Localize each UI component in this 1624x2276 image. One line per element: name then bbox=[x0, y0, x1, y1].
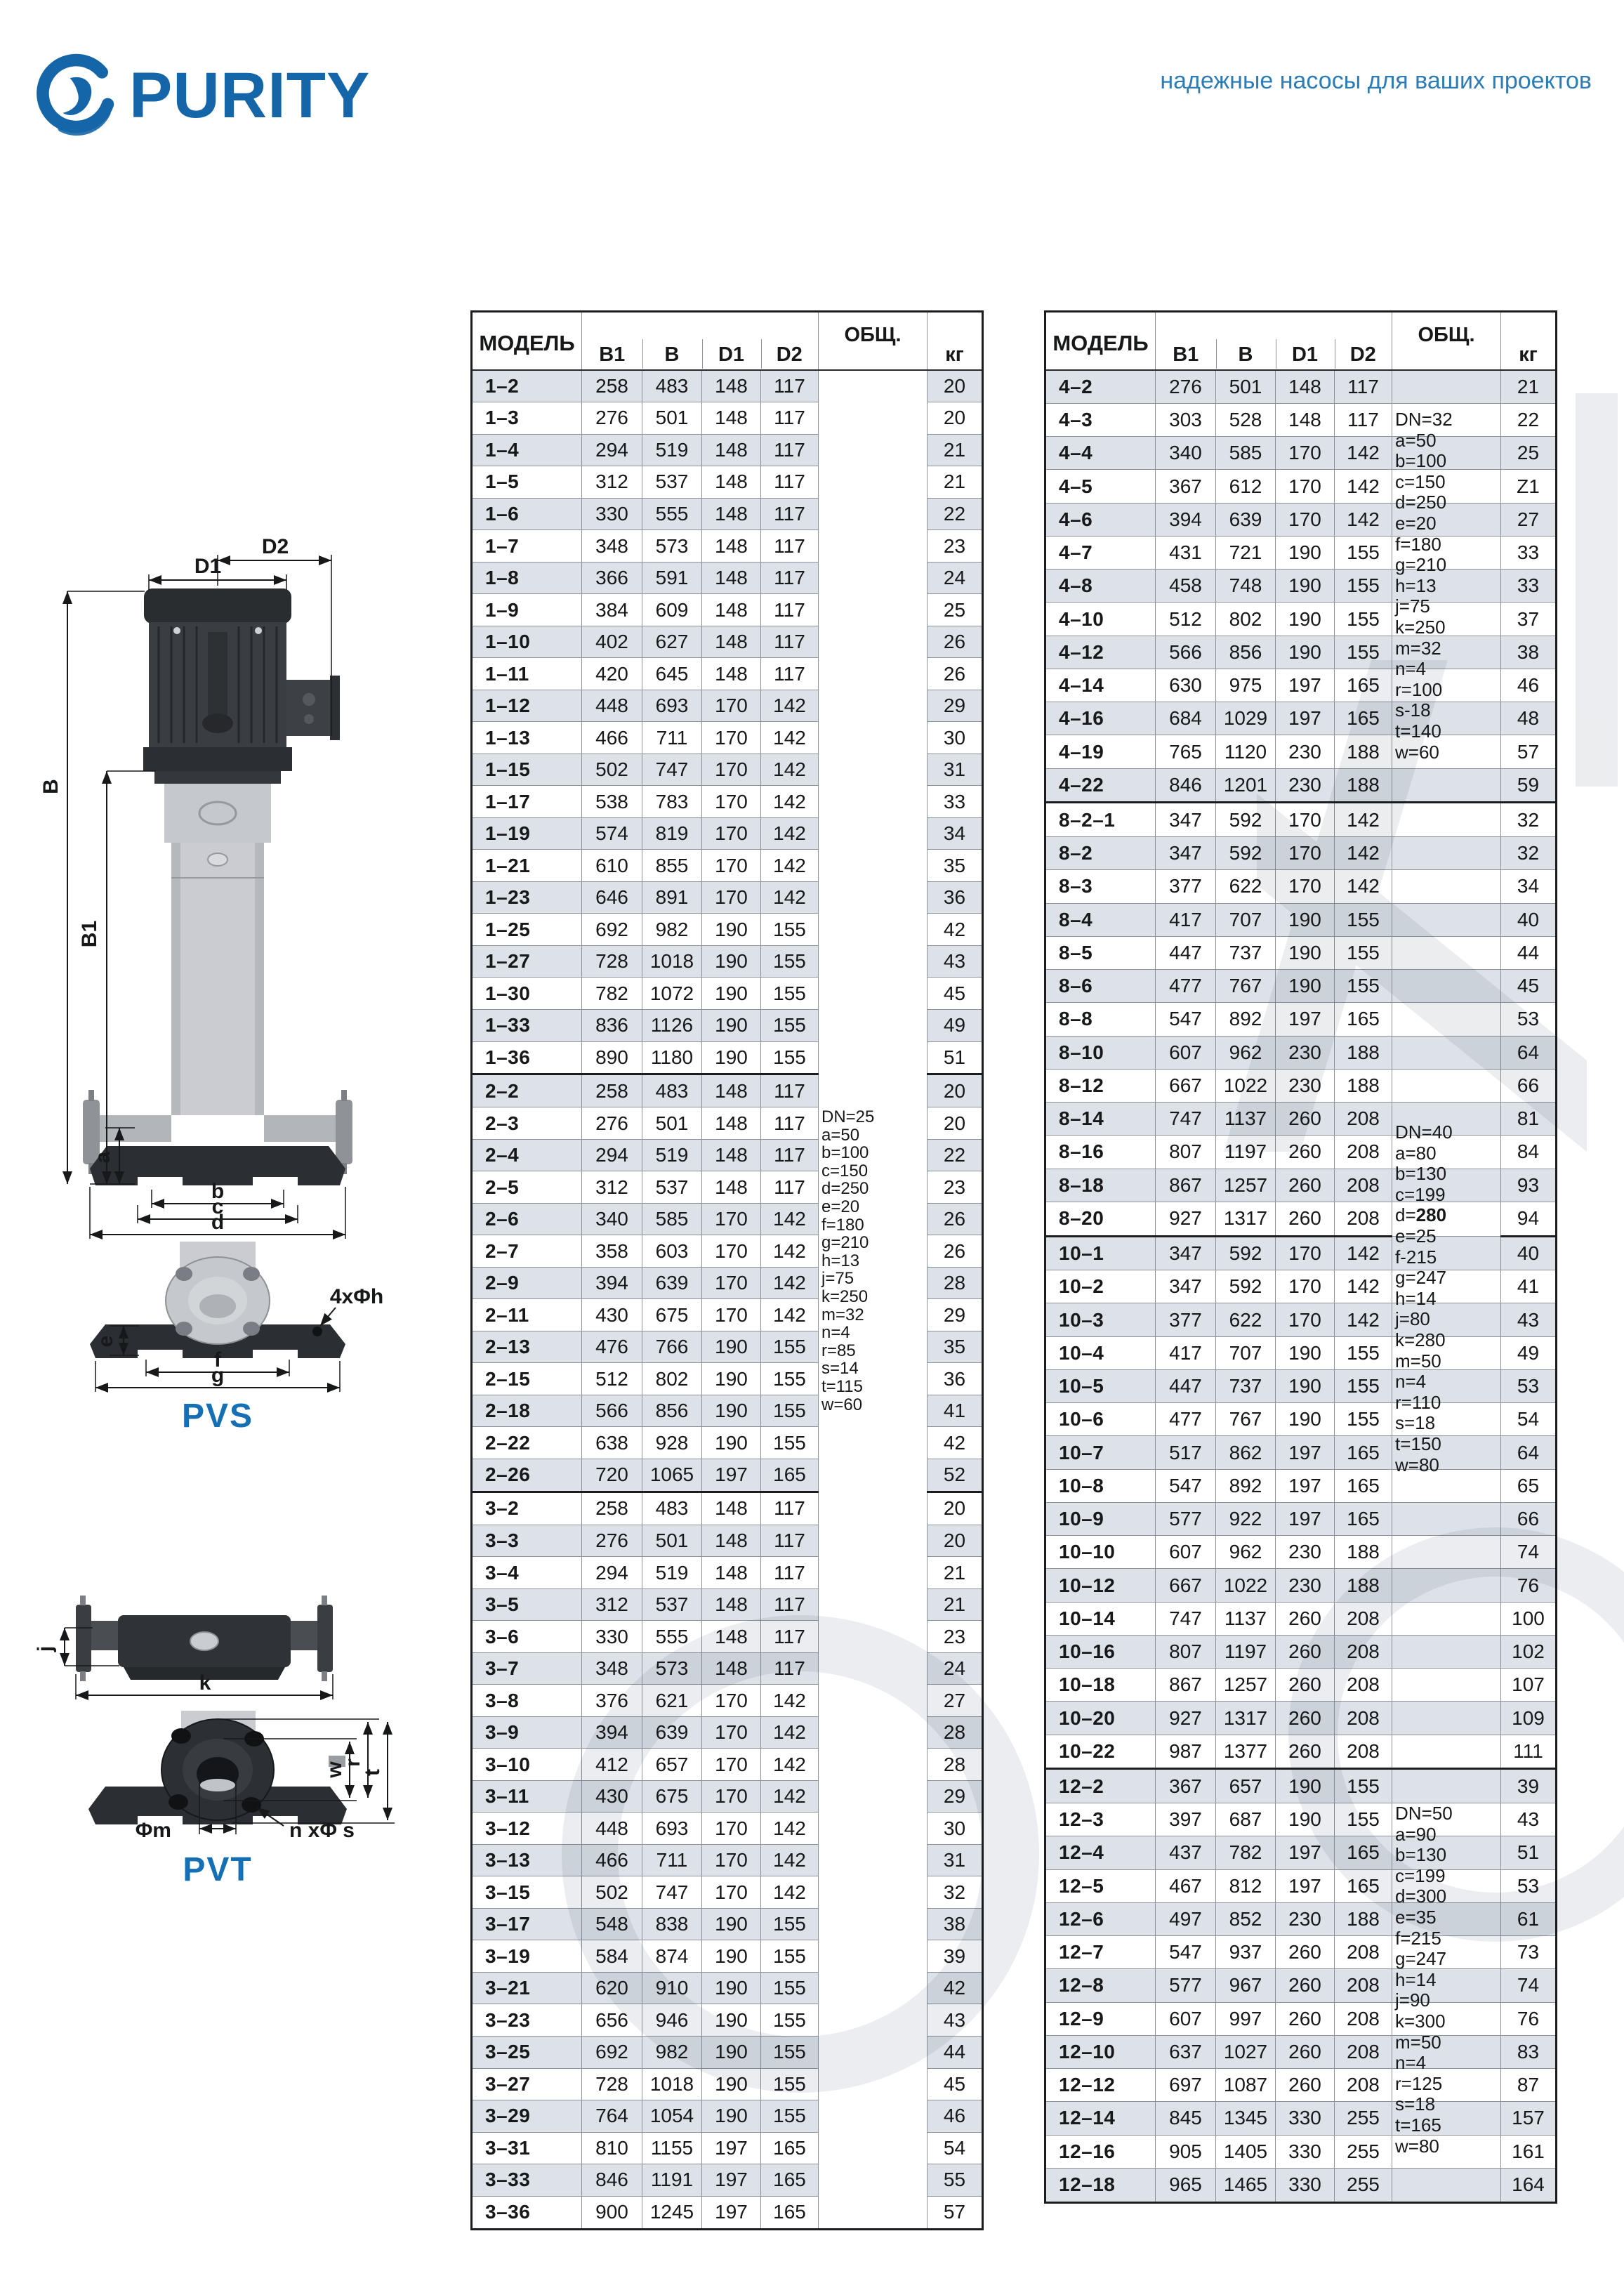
value-cell: 148 bbox=[702, 1588, 761, 1621]
notes-cell bbox=[1392, 1836, 1501, 1869]
value-cell: 367 bbox=[1156, 470, 1216, 503]
value-cell: 155 bbox=[1335, 603, 1392, 636]
value-cell: 208 bbox=[1335, 1702, 1392, 1735]
value-cell: 155 bbox=[761, 914, 819, 946]
weight-cell: 30 bbox=[927, 1813, 983, 1845]
table-row: 4–19765112023018857 bbox=[1045, 735, 1557, 768]
value-cell: 155 bbox=[1335, 970, 1392, 1003]
value-cell: 555 bbox=[642, 1621, 702, 1653]
value-cell: 155 bbox=[761, 2004, 819, 2037]
value-cell: 260 bbox=[1276, 2002, 1335, 2035]
weight-cell: 66 bbox=[1501, 1502, 1557, 1535]
value-cell: 330 bbox=[1276, 2168, 1335, 2202]
value-cell: 547 bbox=[1156, 1469, 1216, 1502]
value-cell: 142 bbox=[761, 1299, 819, 1331]
value-cell: 1197 bbox=[1216, 1635, 1276, 1668]
table-row: 12–443778219716551 bbox=[1045, 1836, 1557, 1869]
weight-cell: 45 bbox=[927, 2068, 983, 2100]
value-cell: 117 bbox=[761, 370, 819, 402]
value-cell: 836 bbox=[582, 1010, 642, 1042]
model-cell: 12–9 bbox=[1045, 2002, 1156, 2035]
weight-cell: 26 bbox=[927, 658, 983, 690]
value-cell: 170 bbox=[702, 881, 761, 914]
value-cell: 348 bbox=[582, 1652, 642, 1685]
value-cell: 117 bbox=[761, 1621, 819, 1653]
value-cell: 927 bbox=[1156, 1202, 1216, 1236]
model-cell: 1–33 bbox=[472, 1010, 582, 1042]
weight-cell: 28 bbox=[927, 1267, 983, 1299]
dim-label-phim: Φm bbox=[136, 1819, 171, 1842]
dim-label-r: r bbox=[341, 1758, 364, 1767]
value-cell: 330 bbox=[582, 498, 642, 530]
model-cell: 2–22 bbox=[472, 1427, 582, 1459]
spec-table: МОДЕЛЬB1BD1D2ОБЩ.кг1–2258483148117201–32… bbox=[470, 310, 984, 2230]
value-cell: 190 bbox=[702, 1940, 761, 1973]
model-cell: 12–18 bbox=[1045, 2168, 1156, 2202]
value-cell: 260 bbox=[1276, 1169, 1335, 1202]
weight-cell: 38 bbox=[927, 1908, 983, 1940]
value-cell: 165 bbox=[1335, 1869, 1392, 1902]
notes-cell bbox=[1392, 370, 1501, 404]
weight-cell: 33 bbox=[1501, 570, 1557, 603]
weight-cell: 20 bbox=[927, 370, 983, 402]
column-header-b: B bbox=[642, 312, 702, 370]
notes-cell bbox=[1392, 1202, 1501, 1236]
notes-cell bbox=[1392, 803, 1501, 837]
table-row: 10–234759217014241 bbox=[1045, 1270, 1557, 1303]
value-cell: 937 bbox=[1216, 1936, 1276, 1969]
value-cell: 208 bbox=[1335, 2069, 1392, 2102]
table-row: 12–189651465330255164 bbox=[1045, 2168, 1557, 2202]
value-cell: 170 bbox=[1276, 503, 1335, 536]
value-cell: 294 bbox=[582, 434, 642, 466]
table-row: 4–434058517014225 bbox=[1045, 437, 1557, 470]
value-cell: 148 bbox=[702, 1139, 761, 1171]
model-cell: 8–14 bbox=[1045, 1103, 1156, 1136]
value-cell: 142 bbox=[1335, 870, 1392, 903]
model-cell: 3–3 bbox=[472, 1525, 582, 1557]
value-cell: 347 bbox=[1156, 837, 1216, 870]
value-cell: 967 bbox=[1216, 1969, 1276, 2002]
table-row: 8–20927131726020894 bbox=[1045, 1202, 1557, 1236]
weight-cell: 33 bbox=[927, 786, 983, 818]
value-cell: 142 bbox=[1335, 837, 1392, 870]
value-cell: 982 bbox=[642, 2037, 702, 2069]
value-cell: 366 bbox=[582, 562, 642, 594]
table-row: 12–754793726020873 bbox=[1045, 1936, 1557, 1969]
model-cell: 4–3 bbox=[1045, 403, 1156, 436]
weight-cell: 21 bbox=[927, 466, 983, 499]
value-cell: 810 bbox=[582, 2132, 642, 2164]
value-cell: 142 bbox=[761, 754, 819, 786]
value-cell: 197 bbox=[1276, 1469, 1335, 1502]
value-cell: 155 bbox=[1335, 1369, 1392, 1402]
value-cell: 728 bbox=[582, 945, 642, 978]
value-cell: 197 bbox=[1276, 1003, 1335, 1036]
notes-cell bbox=[1392, 1069, 1501, 1102]
value-cell: 1257 bbox=[1216, 1169, 1276, 1202]
value-cell: 430 bbox=[582, 1780, 642, 1813]
model-cell: 3–29 bbox=[472, 2100, 582, 2133]
table-row: 8–647776719015545 bbox=[1045, 970, 1557, 1003]
value-cell: 190 bbox=[702, 1908, 761, 1940]
value-cell: 208 bbox=[1335, 1169, 1392, 1202]
table-row: 12–339768719015543 bbox=[1045, 1803, 1557, 1836]
weight-cell: 20 bbox=[927, 1525, 983, 1557]
dimensions-table-left: МОДЕЛЬB1BD1D2ОБЩ.кг1–2258483148117201–32… bbox=[470, 310, 984, 2230]
table-row: 10–544773719015553 bbox=[1045, 1369, 1557, 1402]
weight-cell: 23 bbox=[927, 1621, 983, 1653]
value-cell: 197 bbox=[702, 2132, 761, 2164]
model-cell: 1–6 bbox=[472, 498, 582, 530]
value-cell: 348 bbox=[582, 530, 642, 563]
weight-cell: 107 bbox=[1501, 1669, 1557, 1702]
value-cell: 155 bbox=[1335, 1403, 1392, 1436]
model-cell: 1–30 bbox=[472, 978, 582, 1010]
model-cell: 1–9 bbox=[472, 594, 582, 626]
table-row: 10–441770719015549 bbox=[1045, 1336, 1557, 1369]
table-row: 1–225848314811720 bbox=[472, 370, 983, 402]
value-cell: 693 bbox=[642, 1813, 702, 1845]
value-cell: 900 bbox=[582, 2196, 642, 2229]
weight-cell: 43 bbox=[927, 2004, 983, 2037]
value-cell: 165 bbox=[1335, 669, 1392, 702]
model-cell: 1–5 bbox=[472, 466, 582, 499]
value-cell: 208 bbox=[1335, 1136, 1392, 1169]
dim-label-j: j bbox=[34, 1646, 57, 1652]
brand-wordmark: PURITY bbox=[129, 63, 370, 128]
value-cell: 148 bbox=[1276, 403, 1335, 436]
value-cell: 905 bbox=[1156, 2135, 1216, 2168]
value-cell: 430 bbox=[582, 1299, 642, 1331]
value-cell: 142 bbox=[761, 1876, 819, 1909]
value-cell: 188 bbox=[1335, 735, 1392, 768]
model-cell: 4–10 bbox=[1045, 603, 1156, 636]
value-cell: 573 bbox=[642, 1652, 702, 1685]
weight-cell: 22 bbox=[927, 498, 983, 530]
value-cell: 867 bbox=[1156, 1169, 1216, 1202]
notes-cell bbox=[1392, 603, 1501, 636]
value-cell: 1197 bbox=[1216, 1136, 1276, 1169]
value-cell: 190 bbox=[1276, 1803, 1335, 1836]
model-cell: 1–8 bbox=[472, 562, 582, 594]
value-cell: 190 bbox=[702, 1010, 761, 1042]
value-cell: 165 bbox=[1335, 1436, 1392, 1469]
value-cell: 258 bbox=[582, 1074, 642, 1107]
value-cell: 190 bbox=[702, 1363, 761, 1395]
value-cell: 667 bbox=[1156, 1569, 1216, 1602]
value-cell: 693 bbox=[642, 690, 702, 722]
value-cell: 982 bbox=[642, 914, 702, 946]
value-cell: 142 bbox=[1335, 1270, 1392, 1303]
value-cell: 117 bbox=[761, 626, 819, 658]
value-cell: 260 bbox=[1276, 1702, 1335, 1735]
value-cell: 501 bbox=[642, 1525, 702, 1557]
table-row: 4–5367612170142Z1 bbox=[1045, 470, 1557, 503]
value-cell: 148 bbox=[702, 498, 761, 530]
value-cell: 170 bbox=[702, 1749, 761, 1781]
model-cell: 1–15 bbox=[472, 754, 582, 786]
value-cell: 148 bbox=[702, 530, 761, 563]
model-cell: 2–15 bbox=[472, 1363, 582, 1395]
value-cell: 230 bbox=[1276, 1069, 1335, 1102]
value-cell: 197 bbox=[1276, 1436, 1335, 1469]
model-cell: 3–21 bbox=[472, 1972, 582, 2004]
weight-cell: 34 bbox=[927, 817, 983, 850]
notes-cell bbox=[1392, 1336, 1501, 1369]
value-cell: 458 bbox=[1156, 570, 1216, 603]
value-cell: 555 bbox=[642, 498, 702, 530]
value-cell: 155 bbox=[1335, 1336, 1392, 1369]
model-cell: 1–19 bbox=[472, 817, 582, 850]
value-cell: 466 bbox=[582, 1844, 642, 1876]
notes-cell bbox=[1392, 570, 1501, 603]
value-cell: 142 bbox=[1335, 1236, 1392, 1270]
table-row: 8–18867125726020893 bbox=[1045, 1169, 1557, 1202]
model-cell: 4–2 bbox=[1045, 370, 1156, 404]
model-cell: 12–10 bbox=[1045, 2035, 1156, 2068]
bolt-callout-4xph: 4xΦh bbox=[330, 1285, 383, 1308]
column-header-d2: D2 bbox=[761, 312, 819, 370]
value-cell: 566 bbox=[1156, 636, 1216, 669]
value-cell: 155 bbox=[1335, 536, 1392, 569]
value-cell: 208 bbox=[1335, 1669, 1392, 1702]
column-header-d2: D2 bbox=[1335, 312, 1392, 370]
weight-cell: 76 bbox=[1501, 1569, 1557, 1602]
notes-cell bbox=[1392, 1936, 1501, 1969]
value-cell: 170 bbox=[1276, 870, 1335, 903]
weight-cell: 31 bbox=[927, 754, 983, 786]
model-cell: 3–12 bbox=[472, 1813, 582, 1845]
value-cell: 417 bbox=[1156, 1336, 1216, 1369]
model-cell: 8–5 bbox=[1045, 936, 1156, 969]
notes-cell bbox=[1392, 970, 1501, 1003]
value-cell: 197 bbox=[702, 2164, 761, 2197]
value-cell: 577 bbox=[1156, 1502, 1216, 1535]
value-cell: 721 bbox=[1216, 536, 1276, 569]
model-cell: 12–7 bbox=[1045, 1936, 1156, 1969]
model-cell: 3–25 bbox=[472, 2037, 582, 2069]
notes-cell bbox=[1392, 1003, 1501, 1036]
value-cell: 856 bbox=[1216, 636, 1276, 669]
value-cell: 190 bbox=[702, 1427, 761, 1459]
table-row: 10–1060796223018874 bbox=[1045, 1536, 1557, 1569]
value-cell: 502 bbox=[582, 1876, 642, 1909]
weight-cell: 161 bbox=[1501, 2135, 1557, 2168]
value-cell: 170 bbox=[702, 1876, 761, 1909]
value-cell: 165 bbox=[761, 2196, 819, 2229]
weight-cell: 102 bbox=[1501, 1635, 1557, 1668]
value-cell: 627 bbox=[642, 626, 702, 658]
value-cell: 190 bbox=[702, 2037, 761, 2069]
notes-cell bbox=[1392, 1369, 1501, 1402]
model-cell: 8–8 bbox=[1045, 1003, 1156, 1036]
value-cell: 190 bbox=[702, 2004, 761, 2037]
value-cell: 483 bbox=[642, 1492, 702, 1525]
column-header-b1: B1 bbox=[1156, 312, 1216, 370]
purity-swirl-icon bbox=[32, 52, 119, 139]
model-cell: 10–14 bbox=[1045, 1602, 1156, 1635]
value-cell: 190 bbox=[1276, 636, 1335, 669]
value-cell: 767 bbox=[1216, 1403, 1276, 1436]
value-cell: 155 bbox=[761, 1395, 819, 1427]
value-cell: 148 bbox=[702, 370, 761, 402]
weight-cell: 41 bbox=[1501, 1270, 1557, 1303]
value-cell: 890 bbox=[582, 1041, 642, 1074]
weight-cell: 66 bbox=[1501, 1069, 1557, 1102]
pvt-flange-view: w r t Φm n xΦ s PVT bbox=[88, 1711, 395, 1888]
model-cell: 2–6 bbox=[472, 1203, 582, 1235]
value-cell: 802 bbox=[642, 1363, 702, 1395]
table-row: 10–647776719015554 bbox=[1045, 1403, 1557, 1436]
value-cell: 165 bbox=[1335, 1836, 1392, 1869]
model-cell: 4–22 bbox=[1045, 768, 1156, 803]
value-cell: 155 bbox=[761, 1363, 819, 1395]
value-cell: 447 bbox=[1156, 1369, 1216, 1402]
value-cell: 376 bbox=[582, 1685, 642, 1717]
table-row: 8–14747113726020881 bbox=[1045, 1103, 1557, 1136]
model-cell: 3–13 bbox=[472, 1844, 582, 1876]
value-cell: 1029 bbox=[1216, 702, 1276, 735]
weight-cell: 94 bbox=[1501, 1202, 1557, 1236]
model-cell: 2–5 bbox=[472, 1171, 582, 1204]
value-cell: 377 bbox=[1156, 870, 1216, 903]
model-cell: 10–2 bbox=[1045, 1270, 1156, 1303]
value-cell: 155 bbox=[1335, 570, 1392, 603]
column-header-b: B bbox=[1216, 312, 1276, 370]
value-cell: 148 bbox=[702, 466, 761, 499]
value-cell: 260 bbox=[1276, 1202, 1335, 1236]
value-cell: 148 bbox=[702, 626, 761, 658]
model-cell: 8–2–1 bbox=[1045, 803, 1156, 837]
value-cell: 188 bbox=[1335, 1069, 1392, 1102]
value-cell: 962 bbox=[1216, 1536, 1276, 1569]
value-cell: 230 bbox=[1276, 768, 1335, 803]
value-cell: 862 bbox=[1216, 1436, 1276, 1469]
value-cell: 170 bbox=[1276, 1303, 1335, 1336]
value-cell: 142 bbox=[1335, 470, 1392, 503]
value-cell: 855 bbox=[642, 850, 702, 882]
dim-label-d2: D2 bbox=[262, 535, 289, 558]
value-cell: 975 bbox=[1216, 669, 1276, 702]
weight-cell: 93 bbox=[1501, 1169, 1557, 1202]
value-cell: 476 bbox=[582, 1331, 642, 1363]
notes-cell bbox=[1392, 1502, 1501, 1535]
value-cell: 260 bbox=[1276, 1103, 1335, 1136]
value-cell: 148 bbox=[702, 402, 761, 435]
weight-cell: 27 bbox=[927, 1685, 983, 1717]
model-cell: 10–1 bbox=[1045, 1236, 1156, 1270]
value-cell: 501 bbox=[642, 402, 702, 435]
value-cell: 684 bbox=[1156, 702, 1216, 735]
value-cell: 1018 bbox=[642, 2068, 702, 2100]
model-cell: 3–8 bbox=[472, 1685, 582, 1717]
value-cell: 838 bbox=[642, 1908, 702, 1940]
value-cell: 190 bbox=[1276, 903, 1335, 936]
value-cell: 846 bbox=[582, 2164, 642, 2197]
table-row: 10–209271317260208109 bbox=[1045, 1702, 1557, 1735]
model-cell: 1–25 bbox=[472, 914, 582, 946]
model-cell: 4–4 bbox=[1045, 437, 1156, 470]
weight-cell: 87 bbox=[1501, 2069, 1557, 2102]
value-cell: 622 bbox=[1216, 1303, 1276, 1336]
value-cell: 197 bbox=[1276, 669, 1335, 702]
value-cell: 812 bbox=[1216, 1869, 1276, 1902]
value-cell: 412 bbox=[582, 1749, 642, 1781]
value-cell: 155 bbox=[761, 1972, 819, 2004]
model-cell: 10–7 bbox=[1045, 1436, 1156, 1469]
value-cell: 1120 bbox=[1216, 735, 1276, 768]
spec-table: МОДЕЛЬB1BD1D2ОБЩ.кг4–2276501148117214–33… bbox=[1044, 310, 1557, 2204]
value-cell: 155 bbox=[761, 1908, 819, 1940]
table-row: 8–441770719015540 bbox=[1045, 903, 1557, 936]
column-header-total: ОБЩ. bbox=[819, 312, 927, 370]
value-cell: 538 bbox=[582, 786, 642, 818]
table-row: 8–337762217014234 bbox=[1045, 870, 1557, 903]
value-cell: 190 bbox=[702, 1331, 761, 1363]
table-row: 10–134759217014240 bbox=[1045, 1236, 1557, 1270]
value-cell: 394 bbox=[582, 1716, 642, 1749]
value-cell: 592 bbox=[1216, 1270, 1276, 1303]
column-header-d1: D1 bbox=[702, 312, 761, 370]
value-cell: 802 bbox=[1216, 603, 1276, 636]
weight-cell: 20 bbox=[927, 1492, 983, 1525]
value-cell: 155 bbox=[761, 1940, 819, 1973]
value-cell: 747 bbox=[642, 1876, 702, 1909]
column-header-model: МОДЕЛЬ bbox=[1045, 312, 1156, 370]
model-cell: 10–18 bbox=[1045, 1669, 1156, 1702]
value-cell: 260 bbox=[1276, 1136, 1335, 1169]
value-cell: 170 bbox=[1276, 437, 1335, 470]
value-cell: 585 bbox=[1216, 437, 1276, 470]
value-cell: 852 bbox=[1216, 1902, 1276, 1935]
model-cell: 1–11 bbox=[472, 658, 582, 690]
table-row: 10–229871377260208111 bbox=[1045, 1735, 1557, 1769]
value-cell: 603 bbox=[642, 1235, 702, 1268]
value-cell: 188 bbox=[1335, 1902, 1392, 1935]
value-cell: 447 bbox=[1156, 936, 1216, 969]
value-cell: 165 bbox=[1335, 702, 1392, 735]
value-cell: 1126 bbox=[642, 1010, 702, 1042]
value-cell: 1072 bbox=[642, 978, 702, 1010]
notes-cell bbox=[1392, 903, 1501, 936]
value-cell: 892 bbox=[1216, 1003, 1276, 1036]
model-cell: 3–7 bbox=[472, 1652, 582, 1685]
value-cell: 402 bbox=[582, 626, 642, 658]
value-cell: 517 bbox=[1156, 1436, 1216, 1469]
notes-cell bbox=[1392, 870, 1501, 903]
model-cell: 8–3 bbox=[1045, 870, 1156, 903]
value-cell: 170 bbox=[702, 754, 761, 786]
value-cell: 170 bbox=[702, 1813, 761, 1845]
dim-label-k: k bbox=[199, 1671, 211, 1695]
model-cell: 12–5 bbox=[1045, 1869, 1156, 1902]
weight-cell: 23 bbox=[927, 1171, 983, 1204]
weight-cell: 42 bbox=[927, 1972, 983, 2004]
model-cell: 1–12 bbox=[472, 690, 582, 722]
weight-cell: 24 bbox=[927, 562, 983, 594]
value-cell: 142 bbox=[761, 1844, 819, 1876]
table-row: 12–960799726020876 bbox=[1045, 2002, 1557, 2035]
value-cell: 519 bbox=[642, 1557, 702, 1589]
table-row: 4–1463097519716546 bbox=[1045, 669, 1557, 702]
value-cell: 148 bbox=[702, 562, 761, 594]
value-cell: 190 bbox=[702, 1395, 761, 1427]
value-cell: 208 bbox=[1335, 2035, 1392, 2068]
weight-cell: 20 bbox=[927, 1074, 983, 1107]
value-cell: 190 bbox=[702, 978, 761, 1010]
model-cell: 3–17 bbox=[472, 1908, 582, 1940]
